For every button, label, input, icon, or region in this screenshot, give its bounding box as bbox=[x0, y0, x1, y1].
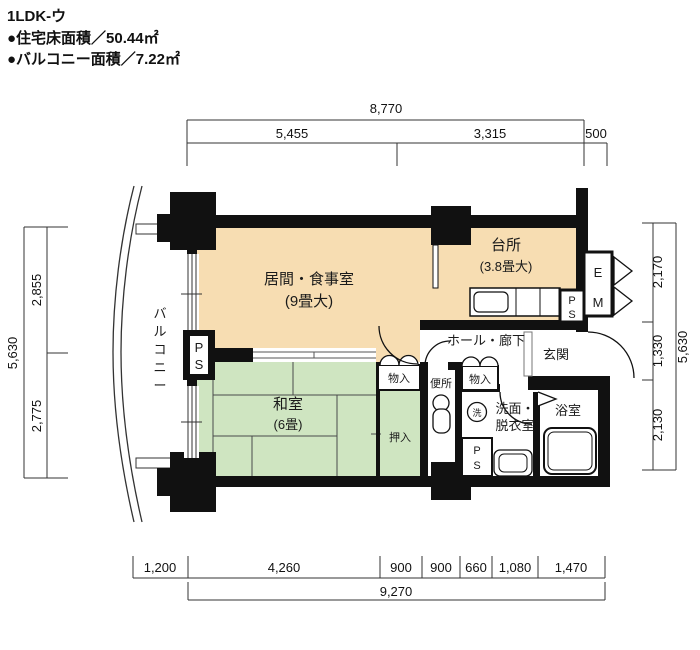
column-top-left bbox=[170, 192, 216, 250]
ps-left-s: S bbox=[195, 357, 204, 372]
dim-bottom-seg4: 900 bbox=[430, 560, 452, 575]
wall-bath-right bbox=[598, 390, 610, 482]
sliding-door-living-washitsu bbox=[253, 348, 376, 362]
balcony-char-1: バ bbox=[153, 306, 166, 321]
column-top-left-tab bbox=[157, 214, 170, 242]
meter-e-label: E bbox=[594, 265, 603, 280]
column-bottom-left-tab bbox=[157, 468, 170, 496]
storage-right-label: 物入 bbox=[469, 372, 491, 386]
column-top-middle bbox=[431, 206, 471, 245]
dim-top-seg3: 500 bbox=[585, 126, 607, 141]
kitchen-size: (3.8畳大) bbox=[480, 259, 533, 274]
dim-bottom-seg7: 1,470 bbox=[555, 560, 588, 575]
balcony-char-2: ル bbox=[153, 324, 166, 339]
vanity-sink-basin bbox=[499, 454, 527, 472]
wall-top bbox=[187, 215, 584, 228]
storage-left-label: 物入 bbox=[388, 371, 410, 385]
dim-bottom-seg6: 1,080 bbox=[499, 560, 532, 575]
dim-right-total: 5,630 bbox=[675, 331, 690, 364]
entrance-label: 玄関 bbox=[543, 347, 569, 362]
bathtub-inner bbox=[548, 432, 592, 470]
dim-top-seg1: 5,455 bbox=[276, 126, 309, 141]
ps-washroom-s: S bbox=[473, 460, 480, 472]
balcony-area-text: ●バルコニー面積／7.22㎡ bbox=[7, 50, 180, 68]
ps-shaft-washroom: P S bbox=[462, 438, 492, 476]
ps-kitchen-s: S bbox=[568, 309, 575, 321]
dim-left-total: 5,630 bbox=[5, 337, 20, 370]
dim-bottom-seg5: 660 bbox=[465, 560, 487, 575]
washroom-label-line2: 脱衣室 bbox=[495, 418, 534, 433]
balcony-char-5: ー bbox=[153, 378, 166, 393]
balcony-char-4: ニ bbox=[153, 360, 166, 375]
washroom-label-line1: 洗面・ bbox=[495, 401, 534, 416]
dim-bottom-seg3: 900 bbox=[390, 560, 412, 575]
balcony-label: バ ル コ ニ ー bbox=[153, 306, 166, 393]
kitchen-partition-stub bbox=[433, 245, 438, 288]
wall-toilet-left bbox=[420, 362, 428, 476]
dim-top-total: 8,770 bbox=[370, 101, 403, 116]
meter-m-label: M bbox=[593, 295, 604, 310]
dim-left-seg2: 2,775 bbox=[29, 400, 44, 433]
ps-left-p: P bbox=[195, 340, 204, 355]
ps-box-left: P S bbox=[183, 330, 215, 380]
wall-bottom bbox=[187, 476, 610, 487]
plan-title: 1LDK-ウ bbox=[7, 8, 66, 25]
hall-label: ホール・廊下 bbox=[447, 333, 525, 348]
ps-kitchen-p: P bbox=[568, 295, 575, 307]
closet-label: 押入 bbox=[389, 430, 411, 444]
dim-left-seg1: 2,855 bbox=[29, 274, 44, 307]
kitchen-sink-icon bbox=[474, 292, 508, 312]
kitchen-label: 台所 bbox=[491, 237, 521, 254]
toilet-bowl-icon bbox=[433, 409, 450, 433]
ps-washroom-p: P bbox=[473, 445, 480, 457]
floorplan-page: 1LDK-ウ ●住宅床面積／50.44㎡ ●バルコニー面積／7.22㎡ 8,77… bbox=[0, 0, 700, 650]
wall-entrance-bottom bbox=[528, 376, 583, 390]
balcony-char-3: コ bbox=[153, 342, 166, 357]
dim-right-seg2: 1,330 bbox=[650, 335, 665, 368]
washitsu-label: 和室 bbox=[273, 396, 303, 413]
ps-box-kitchen: P S bbox=[560, 290, 584, 322]
wall-toilet-top bbox=[448, 362, 462, 370]
toilet-label: 便所 bbox=[430, 377, 452, 390]
dim-bottom-seg2: 4,260 bbox=[268, 560, 301, 575]
dim-bottom-total: 9,270 bbox=[380, 584, 413, 599]
floorplan-drawing: 1LDK-ウ ●住宅床面積／50.44㎡ ●バルコニー面積／7.22㎡ 8,77… bbox=[0, 0, 700, 650]
washing-machine-label: 洗 bbox=[472, 407, 481, 418]
column-bottom-left bbox=[170, 452, 216, 512]
entrance-step bbox=[524, 332, 532, 376]
living-room-size: (9畳大) bbox=[285, 293, 333, 310]
dim-right-seg1: 2,170 bbox=[650, 256, 665, 289]
living-room-label: 居間・食事室 bbox=[264, 271, 354, 288]
dim-top-seg2: 3,315 bbox=[474, 126, 507, 141]
floor-area-text: ●住宅床面積／50.44㎡ bbox=[7, 29, 159, 47]
washitsu-size: (6畳) bbox=[274, 417, 303, 432]
kitchen-counter bbox=[470, 288, 560, 316]
dim-right-seg3: 2,130 bbox=[650, 409, 665, 442]
bath-label: 浴室 bbox=[555, 403, 581, 418]
dim-bottom-seg1: 1,200 bbox=[144, 560, 177, 575]
